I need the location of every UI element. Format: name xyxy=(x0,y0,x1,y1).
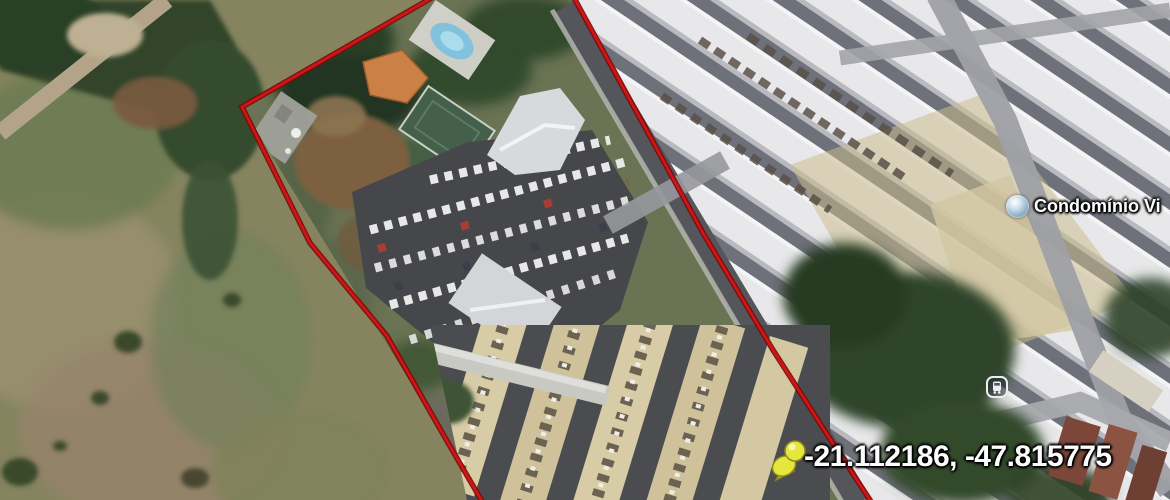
photo-dot-icon[interactable] xyxy=(1006,195,1029,218)
satellite-imagery xyxy=(0,0,1170,500)
place-label-text: Condomínio Vi xyxy=(1034,196,1161,217)
bus-stop-icon[interactable] xyxy=(985,375,1009,399)
placemark-coordinates-label: -21.112186, -47.815775 xyxy=(804,440,1112,474)
place-label[interactable]: Condomínio Vi xyxy=(1006,195,1161,218)
google-earth-viewport[interactable]: -21.112186, -47.815775 Condomínio Vi xyxy=(0,0,1170,500)
